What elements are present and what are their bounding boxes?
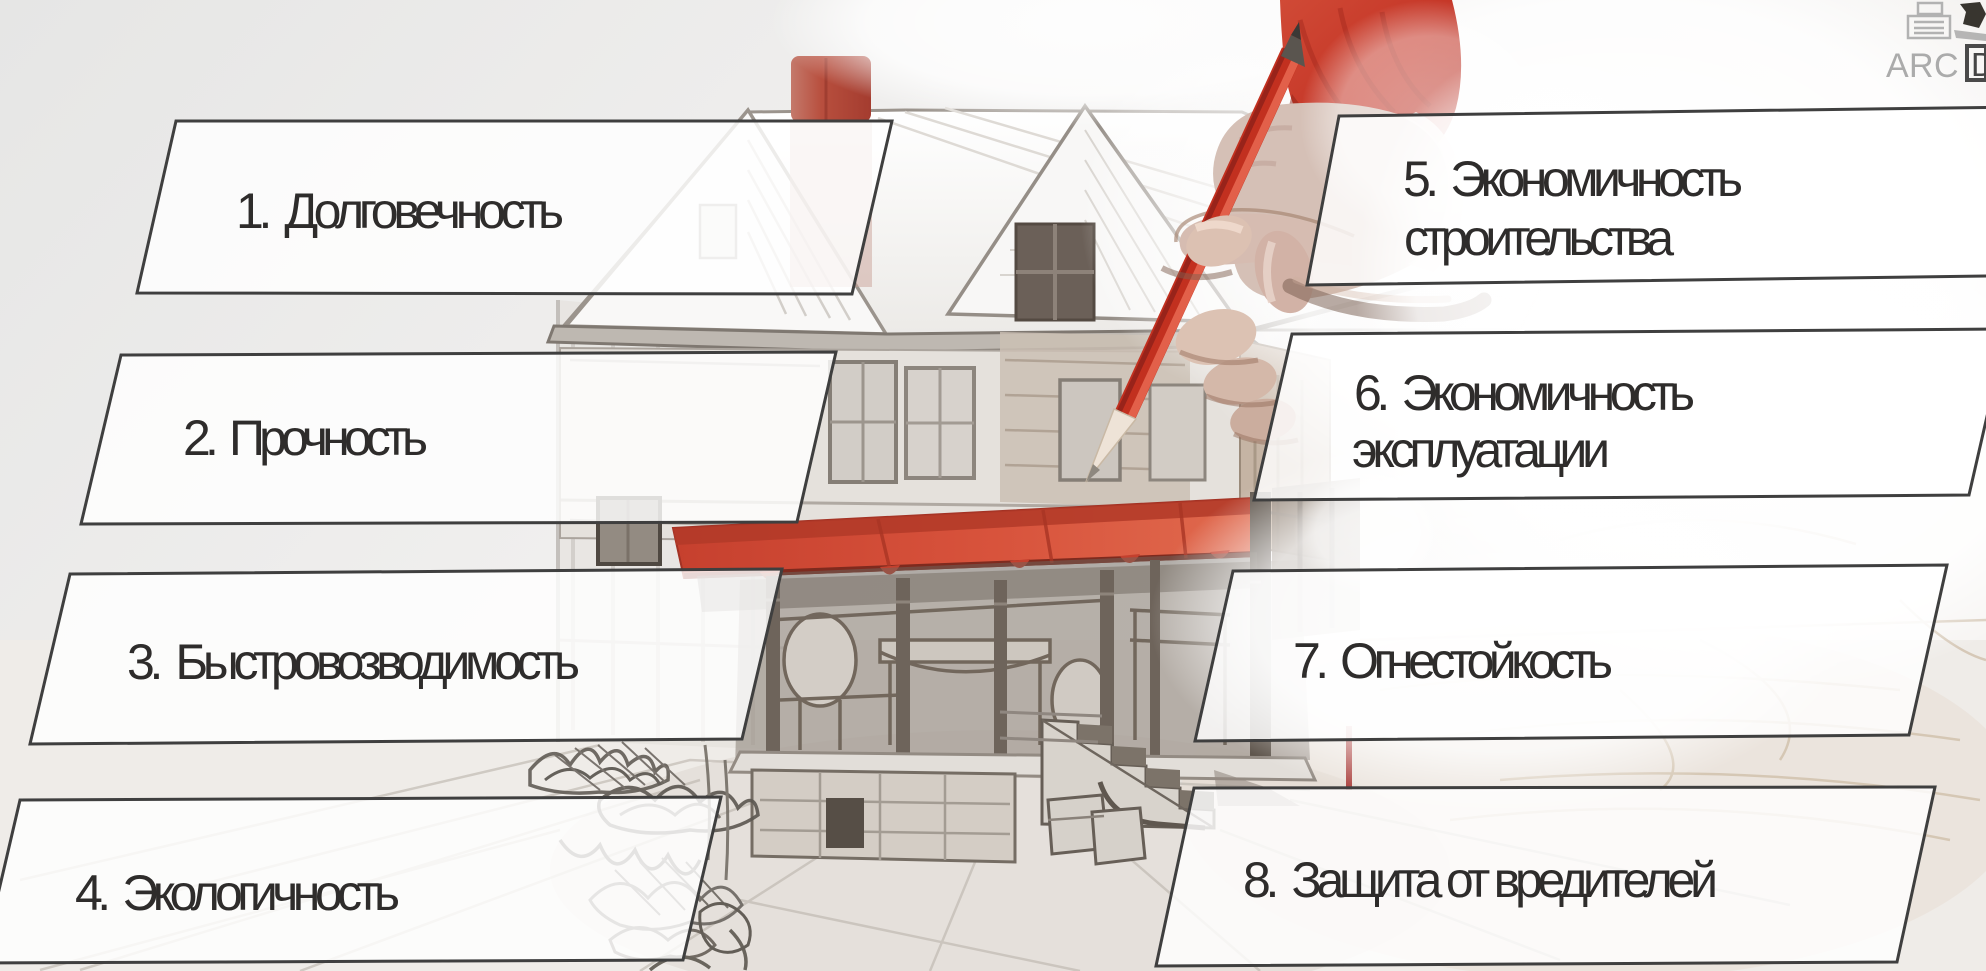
svg-text:2. Прочность: 2. Прочность [183,410,428,466]
svg-text:1. Долговечность: 1. Долговечность [236,183,564,239]
svg-text:эксплуатации: эксплуатации [1352,422,1610,478]
svg-text:строительства: строительства [1404,210,1674,266]
svg-text:6. Экономичность: 6. Экономичность [1354,365,1695,421]
svg-text:4. Экологичность: 4. Экологичность [75,865,400,921]
svg-text:7. Огнестойкость: 7. Огнестойкость [1293,633,1613,689]
svg-text:5. Экономичность: 5. Экономичность [1403,151,1743,207]
svg-text:8. Защита от вредителей: 8. Защита от вредителей [1243,852,1718,908]
svg-text:D: D [1971,46,1986,83]
svg-text:3. Быстровозводимость: 3. Быстровозводимость [127,634,580,690]
svg-text:ARC: ARC [1886,47,1960,85]
